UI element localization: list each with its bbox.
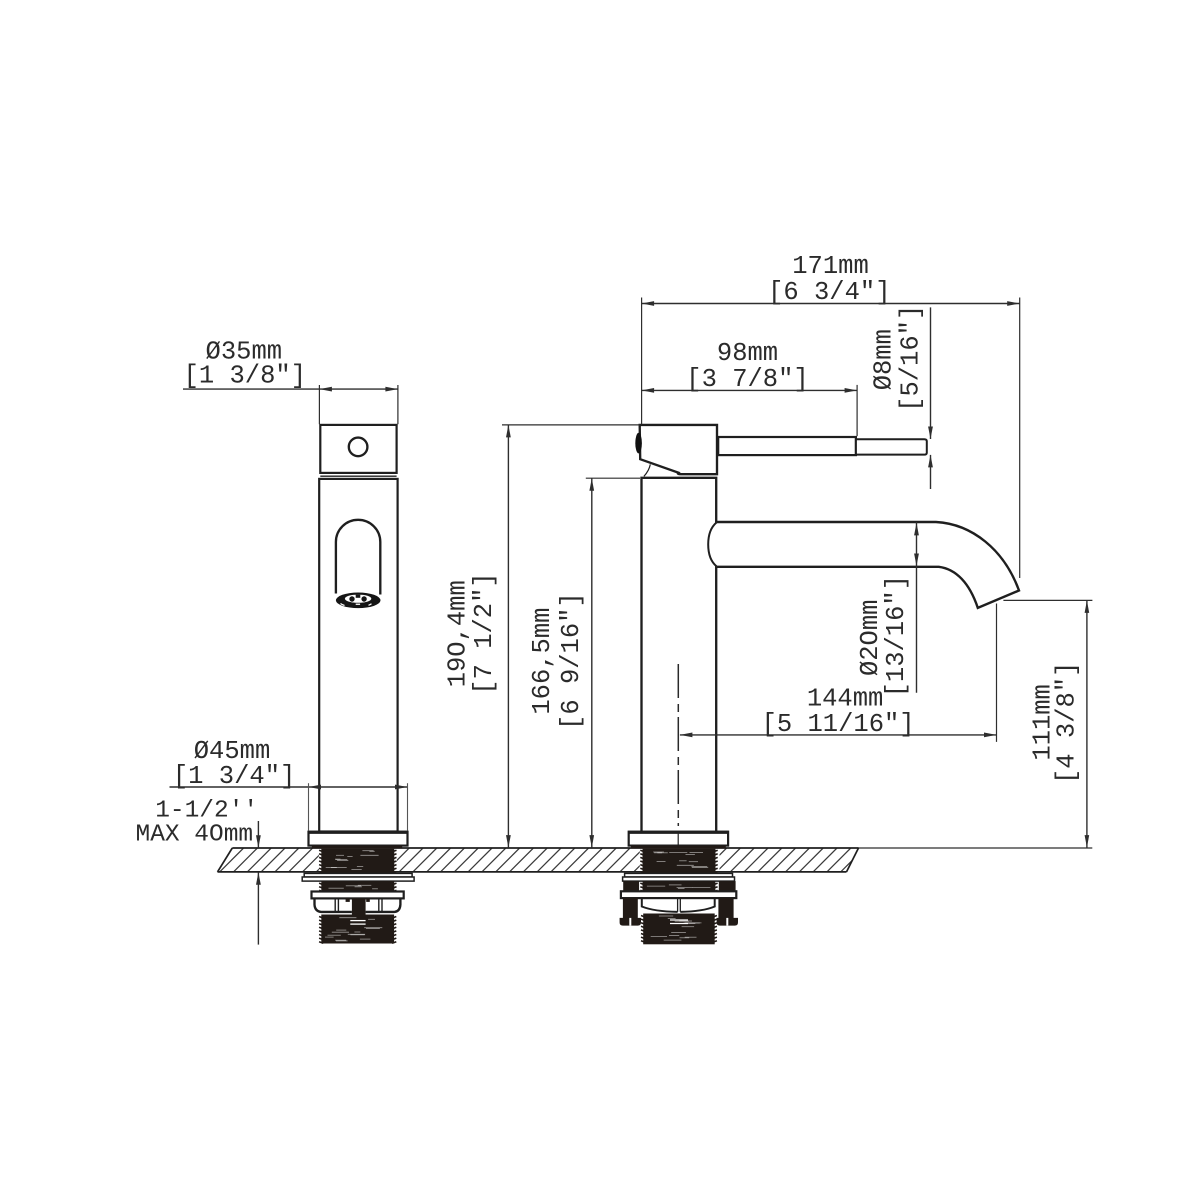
svg-text:Ø2Omm: Ø2Omm bbox=[856, 600, 885, 677]
svg-text:[13/16″]: [13/16″] bbox=[882, 575, 911, 697]
svg-text:1-1/2′′: 1-1/2′′ bbox=[155, 798, 258, 825]
svg-text:144mm: 144mm bbox=[807, 685, 884, 714]
svg-text:171mm: 171mm bbox=[792, 252, 869, 281]
svg-text:[6 3/4″]: [6 3/4″] bbox=[768, 278, 890, 307]
svg-text:[3 7/8″]: [3 7/8″] bbox=[686, 365, 808, 394]
svg-text:[5/16″]: [5/16″] bbox=[897, 305, 926, 412]
svg-text:19O,4mm: 19O,4mm bbox=[444, 580, 473, 687]
svg-text:Ø8mm: Ø8mm bbox=[869, 329, 898, 390]
svg-text:[1 3/8″]: [1 3/8″] bbox=[184, 362, 306, 391]
svg-text:166,5mm: 166,5mm bbox=[528, 608, 557, 715]
svg-text:98mm: 98mm bbox=[717, 339, 778, 368]
svg-text:MAX 4Omm: MAX 4Omm bbox=[136, 822, 254, 849]
svg-text:[7 1/2″]: [7 1/2″] bbox=[470, 572, 499, 694]
svg-text:[6 9/16″]: [6 9/16″] bbox=[557, 592, 586, 730]
svg-text:[4 3/8″]: [4 3/8″] bbox=[1053, 662, 1082, 784]
